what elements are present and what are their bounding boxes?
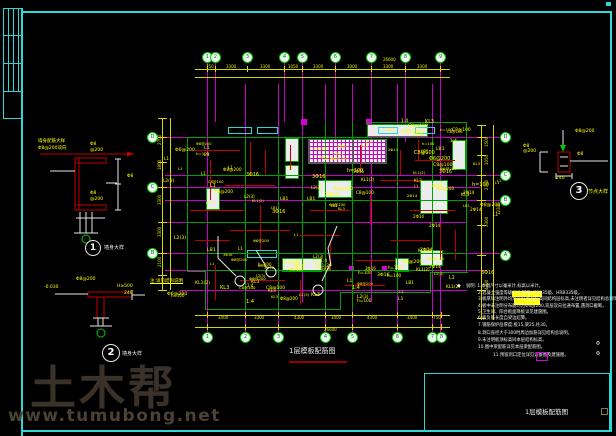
note-line: 9.未注明板顶标高同本层结构标高。 — [478, 339, 547, 343]
axis-bubble: 8 — [400, 52, 411, 63]
axis-bubble: 5 — [347, 332, 358, 343]
beam-label: L1 — [204, 147, 210, 152]
beam-label: LB1 — [436, 148, 445, 153]
title-block-stamp-icon — [601, 408, 608, 415]
axis-bubble: 5 — [297, 52, 308, 63]
note-detail-box — [536, 352, 548, 361]
beam-label: h=100 — [358, 271, 372, 275]
detail-3-geometry — [540, 130, 608, 179]
axis-bubble: 6 — [392, 332, 403, 343]
beam-label: KL3 — [220, 286, 229, 291]
beam-label: Φ8@200 — [313, 148, 329, 152]
beam-label: L1 — [398, 298, 403, 303]
beam-label: 1:4 — [398, 291, 404, 295]
axis-bubble: 2 — [210, 52, 221, 63]
beam-label: L1 — [201, 172, 206, 176]
detail-2-geometry — [55, 290, 145, 337]
beam-label: C8@100 — [356, 191, 374, 195]
axis-bubble: C — [147, 182, 158, 193]
annotation-text: Φ8@200 — [575, 130, 595, 135]
annotation-text: 26600 — [383, 58, 396, 62]
detail-1-geometry — [40, 152, 134, 244]
beam-label: KL3 — [311, 293, 320, 298]
beam-label: C8@100 — [239, 286, 256, 290]
note-line: 11.预留洞口定位详见设备图及建施图。 — [493, 354, 569, 358]
annotation-text: 1800 — [158, 160, 162, 170]
beam-label: L2(3) — [256, 275, 265, 279]
beam-label: KL1(2) — [413, 172, 425, 176]
annotation-text: 3400 — [407, 316, 417, 320]
beam-label: KL3 — [414, 179, 422, 183]
note-line: 8.洞口直径大于300时周边加筋详见结构总说明。 — [478, 332, 572, 336]
axis-bubble: 1 — [202, 332, 213, 343]
detail-number-bubble: 1 — [85, 240, 101, 256]
beam-label: KL3 — [361, 144, 369, 148]
beam-label: L1 — [288, 166, 293, 170]
annotation-text: Φ8@200 — [76, 278, 96, 283]
title-block-label: 1层模板配筋图 — [525, 406, 568, 416]
note-line: 2.混凝土强度等级C25,钢筋HPB235级、HRB335级。 — [478, 292, 582, 296]
note-line: 10.图中梁配筋详见本层梁配筋图。 — [478, 346, 545, 350]
beam-label: KL1(2) — [361, 178, 374, 182]
beam-label: KL3 — [425, 120, 434, 125]
axis-bubble: 6 — [330, 52, 341, 63]
annotation-text: 1050 — [485, 155, 489, 165]
annotation-text: Φ8 — [90, 192, 96, 197]
annotation-text: 3400 — [218, 316, 228, 320]
beam-label: L1 — [210, 184, 216, 189]
beam-label: 1:4 — [246, 300, 254, 305]
annotation-text: 3300 — [226, 65, 236, 69]
beam-label: Φ6@200 — [167, 293, 187, 298]
beam-label: h=100 — [388, 266, 402, 270]
beam-label: L1 — [294, 234, 298, 238]
beam-label: 1:4 — [401, 120, 408, 125]
beam-label: 3Φ16 — [439, 171, 452, 176]
annotation-text: 750 — [206, 65, 214, 69]
beam-label: 3Φ16 — [312, 175, 325, 180]
beam-label: KL1(2) — [418, 249, 432, 253]
beam-label: Φ6@200 — [429, 157, 450, 162]
beam-label: L1 — [178, 167, 183, 171]
beam-label: 2Φ14 — [388, 149, 398, 153]
beam-label: LB1 — [280, 198, 288, 202]
beam-label: h=100 — [440, 128, 453, 132]
beam-label: 2Φ14 — [401, 130, 414, 135]
annotation-text: 墙身大样 — [104, 246, 124, 251]
annotation-text: 3300 — [158, 227, 162, 237]
beam-label: KL1(2) — [195, 282, 210, 287]
beam-label: L1 — [414, 185, 418, 189]
beam-label: KL1(2) — [316, 265, 331, 270]
north-arrow-icon — [560, 145, 566, 152]
axis-bubble: B — [500, 195, 511, 206]
beam-label: KL3 — [271, 295, 278, 299]
annotation-text: 节点大样 — [588, 190, 608, 195]
beam-label: L1 — [347, 280, 352, 284]
beam-label: 2Φ14 — [470, 209, 482, 213]
annotation-text: 3400 — [331, 316, 341, 320]
beam-label: KL3 — [206, 202, 213, 206]
rebar-symbol: Φ — [596, 342, 600, 347]
beam-label: L2(3) — [434, 273, 444, 277]
beam-label: 2Φ14 — [429, 266, 441, 270]
beam-label: 2Φ14 — [337, 145, 348, 149]
beam-label: Φ6@200 — [402, 261, 422, 266]
beam-label: KL1(2) — [416, 268, 430, 272]
plan-title: 1层模板配筋图 — [289, 346, 335, 356]
note-line: 说明: 1.本图尺寸以毫米计,标高以米计。 — [466, 285, 543, 289]
beam-label: 3Φ16 — [377, 274, 390, 279]
beam-label: 2Φ14 — [429, 224, 440, 228]
annotation-text: 3300 — [260, 65, 270, 69]
beam-label: 3Φ16 — [272, 210, 285, 215]
cad-drawing-canvas: 1层模板配筋图 1层模板配筋图 土木帮 www.tumubong.net 123… — [0, 0, 616, 436]
annotation-text: 2100 — [158, 257, 162, 267]
beam-label: L2(3) — [244, 195, 255, 199]
axis-bubble: 3 — [242, 52, 253, 63]
axis-bubble: 2 — [240, 332, 251, 343]
beam-label: 3Φ16 — [481, 271, 494, 276]
beam-label: KL3 — [461, 194, 470, 199]
beam-label: LB1 — [331, 205, 338, 209]
beam-label: C8@100 — [452, 129, 471, 133]
beam-label: L1 — [238, 247, 243, 251]
beam-label: h=100 — [357, 300, 372, 304]
beam-label: 1:4 — [352, 286, 360, 291]
annotation-text: @200 — [90, 149, 103, 154]
annotation-text: 2700 — [158, 135, 162, 145]
annotation-text: 2700 — [485, 180, 489, 190]
beam-label: h=100 — [422, 143, 434, 147]
axis-bubble: 4 — [279, 52, 290, 63]
beam-label: 3Φ16 — [385, 128, 396, 132]
beam-label: Φ6@200 — [436, 187, 454, 191]
beam-label: KL3 — [473, 162, 480, 166]
beam-label: L2(3) — [311, 186, 321, 190]
note-line: 6.板负筋长度自梁边起算。 — [478, 317, 529, 321]
beam-label: L1 — [204, 154, 210, 159]
note-line: 5.卫生间、阳台板面降板详见建施图。 — [478, 311, 551, 315]
beam-label: KL3 — [258, 264, 265, 268]
beam-label: Φ8@200 — [357, 283, 373, 287]
beam-label: KL1(2) — [252, 200, 264, 204]
axis-bubble: C — [500, 170, 511, 181]
annotation-text: Φ8 — [577, 153, 583, 158]
annotation-text: -0.030 — [44, 286, 59, 291]
annotation-text: 26600 — [324, 328, 337, 332]
annotation-text: 750 — [433, 316, 441, 320]
beam-label: 2Φ14 — [325, 193, 338, 198]
beam-label: Φ6@200 — [253, 240, 269, 244]
annotation-text: 3300 — [158, 195, 162, 205]
beam-label: 2Φ14 — [407, 194, 417, 198]
beam-label: LB1 — [406, 281, 414, 285]
annotation-text: 3300 — [417, 65, 427, 69]
beam-label: L2(3) — [299, 293, 309, 297]
axis-bubble: 7 — [366, 52, 377, 63]
annotation-text: 3300 — [254, 316, 264, 320]
beam-label: L1 — [449, 277, 455, 282]
detail-number-bubble: 3 — [570, 182, 588, 200]
annotation-text: 4300 — [294, 316, 304, 320]
beam-label: L2(3) — [322, 158, 334, 163]
beam-label: Φ8@200 — [214, 191, 233, 195]
note-lead-icon: ◆ — [457, 284, 461, 289]
annotation-text: 注:详见结构说明 — [150, 280, 183, 285]
beam-label: 3Φ16 — [365, 267, 376, 271]
beam-label: 2Φ14 — [333, 152, 343, 156]
beam-label: 3Φ16 — [353, 170, 364, 174]
axis-bubble: 4 — [320, 332, 331, 343]
annotation-text: 240 — [556, 177, 565, 182]
annotation-text: 3300 — [383, 65, 393, 69]
title-block: 1层模板配筋图 — [424, 373, 610, 431]
beam-label: 3Φ16 — [293, 265, 305, 270]
axis-bubble: 9 — [435, 52, 446, 63]
beam-label: L2(3) — [163, 180, 174, 184]
annotation-text: Φ8 — [90, 143, 96, 148]
beam-label: 3Φ16 — [264, 267, 274, 271]
annotation-text: H≥500 — [117, 285, 133, 290]
annotation-text: 3000 — [347, 65, 357, 69]
axis-bubble: A — [500, 250, 511, 261]
beam-label: LB1 — [307, 198, 315, 202]
axis-bubble: 8 — [436, 332, 447, 343]
rebar-symbol: Φ — [596, 352, 600, 357]
beam-label: 1:4 — [450, 140, 457, 144]
annotation-text: 1050 — [288, 65, 298, 69]
beam-label: L2(3) — [174, 237, 186, 242]
annotation-text: @200 — [523, 150, 536, 155]
watermark-url: www.tumubong.net — [8, 406, 221, 426]
beam-label: LB1 — [207, 249, 216, 254]
beam-label: C8@100 — [208, 181, 224, 185]
beam-label: KL3 — [338, 208, 345, 212]
annotation-text: Φ8@200双向 — [38, 147, 67, 152]
annotation-text: @200 — [90, 198, 103, 203]
note-line: 7.钢筋保护层厚度:板15,梁25,柱30。 — [478, 324, 550, 328]
beam-label: L1 — [210, 263, 214, 267]
beam-label: L1 — [164, 157, 169, 161]
annotation-text: 12300 — [497, 202, 501, 215]
beam-label: Φ6@200 — [175, 149, 195, 154]
note-line: 4.板中未注明分布筋均为Φ6@200,双层双向拉通布置,遇洞口截断。 — [478, 305, 607, 309]
note-line: 3.板厚除注明外均为100,板面标高同结构层标高,未注明者详见结构总说明。 — [478, 298, 616, 302]
beam-label: C8@100 — [433, 164, 453, 169]
beam-label: Φ8@200 — [427, 257, 444, 261]
rebar-circle-icon — [97, 329, 105, 337]
beam-label: Φ8@200 — [280, 297, 298, 301]
beam-label: L1 — [228, 166, 233, 170]
annotation-text: 3300 — [313, 65, 323, 69]
axis-bubble: D — [500, 132, 511, 143]
annotation-text: 240 — [124, 292, 133, 297]
beam-label: L1 — [495, 181, 500, 185]
beam-label: 3Φ16 — [223, 254, 232, 258]
axis-bubble: 3 — [273, 332, 284, 343]
annotation-text: 3300 — [485, 217, 489, 227]
annotation-text: 4300 — [367, 316, 377, 320]
annotation-text: 墙身配筋大样 — [38, 140, 65, 145]
beam-label: 2Φ14 — [413, 215, 424, 219]
beam-label: LB1 — [463, 205, 470, 209]
beam-label: Φ8@200 — [231, 258, 247, 262]
beam-label: 3Φ16 — [246, 174, 259, 179]
plan-title-underline — [289, 361, 347, 363]
beam-label: LB1 — [421, 150, 429, 154]
annotation-text: 1500 — [485, 137, 489, 147]
annotation-text: Φ8 — [127, 175, 133, 180]
